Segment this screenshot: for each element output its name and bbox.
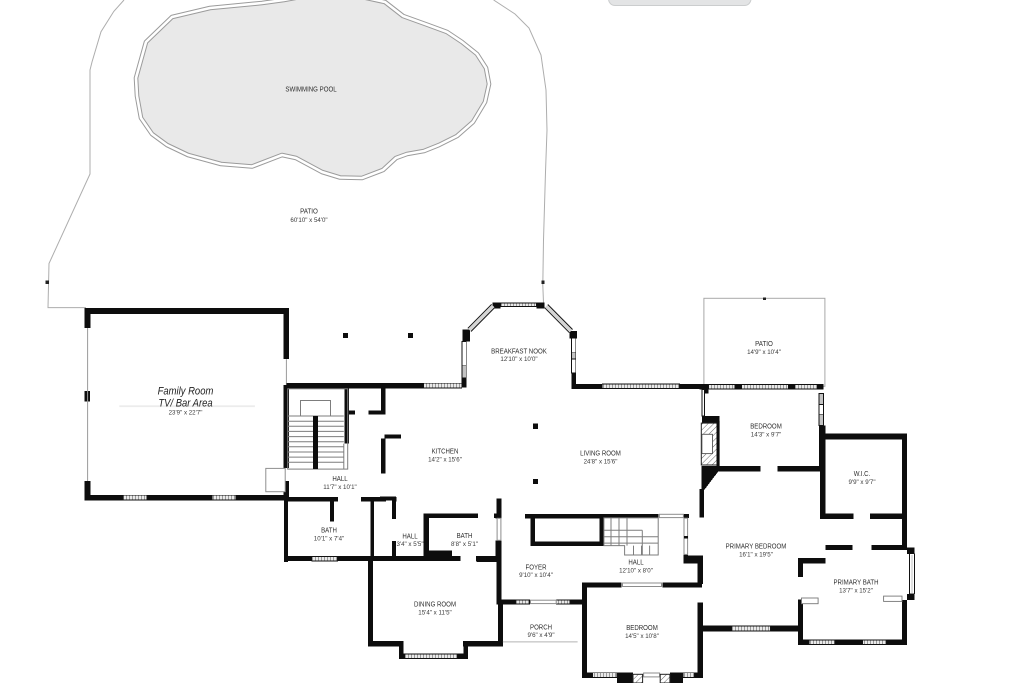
svg-text:BEDROOM: BEDROOM [626,625,658,632]
svg-text:SWIMMING POOL: SWIMMING POOL [285,87,336,94]
svg-text:HALL: HALL [628,560,643,567]
svg-text:14'2" x 15'6": 14'2" x 15'6" [428,457,462,464]
svg-text:23'9" x 22'7": 23'9" x 22'7" [169,410,203,417]
svg-text:9'10" x 10'4": 9'10" x 10'4" [519,572,553,579]
svg-text:TV/ Bar Area: TV/ Bar Area [158,398,212,410]
svg-text:14'5" x 10'8": 14'5" x 10'8" [625,633,659,640]
svg-text:BEDROOM: BEDROOM [750,424,782,431]
svg-text:9'6" x 4'9": 9'6" x 4'9" [527,632,555,639]
svg-text:14'3" x 9'7": 14'3" x 9'7" [751,432,782,439]
svg-text:BATH: BATH [321,528,337,535]
svg-text:DINING ROOM: DINING ROOM [414,602,456,609]
svg-text:24'8" x 15'6": 24'8" x 15'6" [584,459,618,466]
svg-text:13'7" x 15'2": 13'7" x 15'2" [839,588,873,595]
svg-text:W.I.C.: W.I.C. [854,471,871,478]
svg-text:3'4" x 5'5": 3'4" x 5'5" [396,541,424,548]
svg-text:PORCH: PORCH [530,625,552,632]
svg-text:16'1" x 19'5": 16'1" x 19'5" [739,552,773,559]
svg-text:10'1" x 7'4": 10'1" x 7'4" [314,536,345,543]
svg-text:15'4" x 11'5": 15'4" x 11'5" [418,610,452,617]
svg-text:8'8" x 5'1": 8'8" x 5'1" [451,541,479,548]
svg-text:9'9" x 9'7": 9'9" x 9'7" [848,479,876,486]
svg-text:BREAKFAST NOOK: BREAKFAST NOOK [491,349,547,356]
svg-text:PRIMARY BATH: PRIMARY BATH [834,580,879,587]
svg-text:12'10" x 8'0": 12'10" x 8'0" [619,568,653,575]
svg-text:LIVING ROOM: LIVING ROOM [580,451,621,458]
svg-text:BATH: BATH [457,533,473,540]
svg-text:PATIO: PATIO [755,341,773,348]
svg-text:11'7" x 10'1": 11'7" x 10'1" [323,484,357,491]
svg-text:HALL: HALL [332,476,347,483]
svg-text:Family Room: Family Room [158,386,214,398]
svg-text:PATIO: PATIO [300,209,318,216]
svg-text:14'9" x 10'4": 14'9" x 10'4" [747,349,781,356]
svg-text:60'10" x 54'0": 60'10" x 54'0" [290,217,328,224]
svg-text:PRIMARY BEDROOM: PRIMARY BEDROOM [726,544,787,551]
svg-text:FOYER: FOYER [526,565,547,572]
svg-text:KITCHEN: KITCHEN [432,449,459,456]
svg-text:12'10" x 10'0": 12'10" x 10'0" [500,356,538,363]
svg-text:HALL: HALL [402,534,417,541]
